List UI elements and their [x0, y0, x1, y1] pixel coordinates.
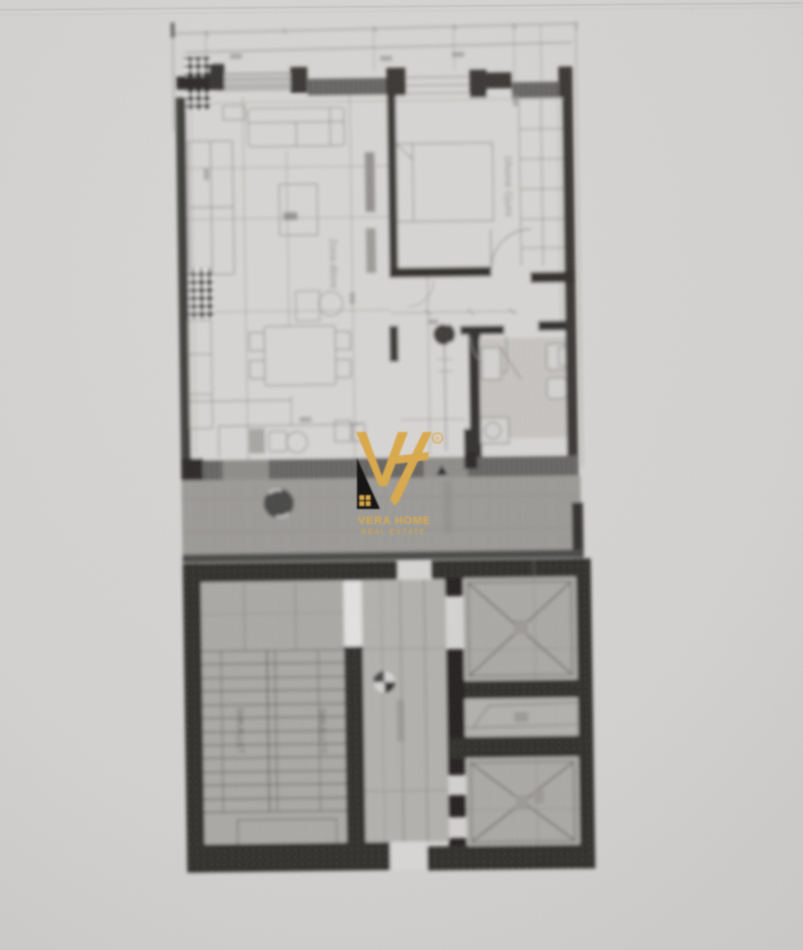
- svg-text:R: R: [435, 436, 440, 443]
- svg-text:REAL ESTATE: REAL ESTATE: [361, 527, 426, 536]
- svg-text:VERA HOME: VERA HOME: [358, 515, 432, 527]
